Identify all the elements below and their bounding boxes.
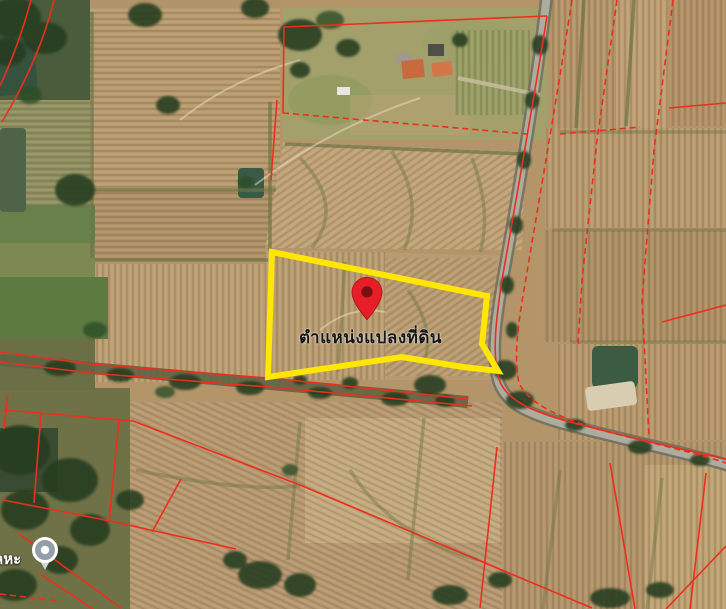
poi-marker-icon[interactable] xyxy=(30,536,60,572)
location-pin-icon[interactable] xyxy=(351,276,383,322)
orange-roof-house xyxy=(401,59,425,79)
plot-location-label: ตำแหน่งแปลงที่ดิน xyxy=(299,324,499,351)
map-viewport[interactable]: ตำแหน่งแปลงที่ดิน ลหะ xyxy=(0,0,726,609)
place-name-label-partial: ลหะ xyxy=(0,547,21,571)
orange-roof-house xyxy=(431,61,452,77)
